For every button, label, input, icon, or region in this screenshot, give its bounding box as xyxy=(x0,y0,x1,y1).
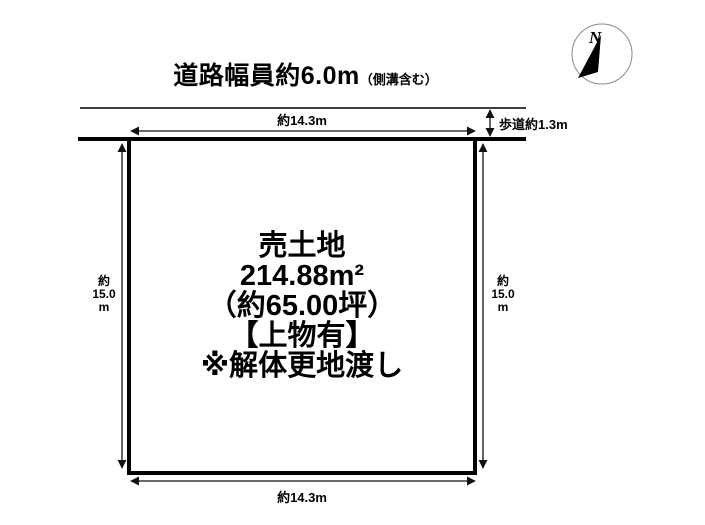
road-width-title-sub: （側溝含む） xyxy=(360,72,438,87)
dimension-label-top-width: 約14.3m xyxy=(127,110,477,129)
road-width-title: 道路幅員約6.0m（側溝含む） xyxy=(78,56,533,92)
plot-area-sqm: 214.88m² xyxy=(127,261,477,291)
dimension-label-right-depth: 約 15.0 m xyxy=(481,275,525,314)
plot-sale-type: 売土地 xyxy=(127,231,477,261)
compass-north-label: N xyxy=(588,28,602,47)
dimension-label-left-depth: 約 15.0 m xyxy=(82,275,126,314)
plot-demolition-note: ※解体更地渡し xyxy=(127,351,477,381)
road-width-title-main: 道路幅員約6.0m xyxy=(173,62,359,90)
compass-rose: N xyxy=(572,24,632,84)
dimension-label-bottom-width: 約14.3m xyxy=(127,487,477,506)
plot-description: 売土地 214.88m² （約65.00坪） 【上物有】 ※解体更地渡し xyxy=(127,231,477,381)
plot-building-note: 【上物有】 xyxy=(127,321,477,351)
plot-area-tsubo: （約65.00坪） xyxy=(127,291,477,321)
land-plot-diagram: N 道路幅員約6.0m（側溝含む） 約14.3m 歩道約1.3m 約 15.0 … xyxy=(0,0,705,525)
sidewalk-width-label: 歩道約1.3m xyxy=(499,114,568,133)
